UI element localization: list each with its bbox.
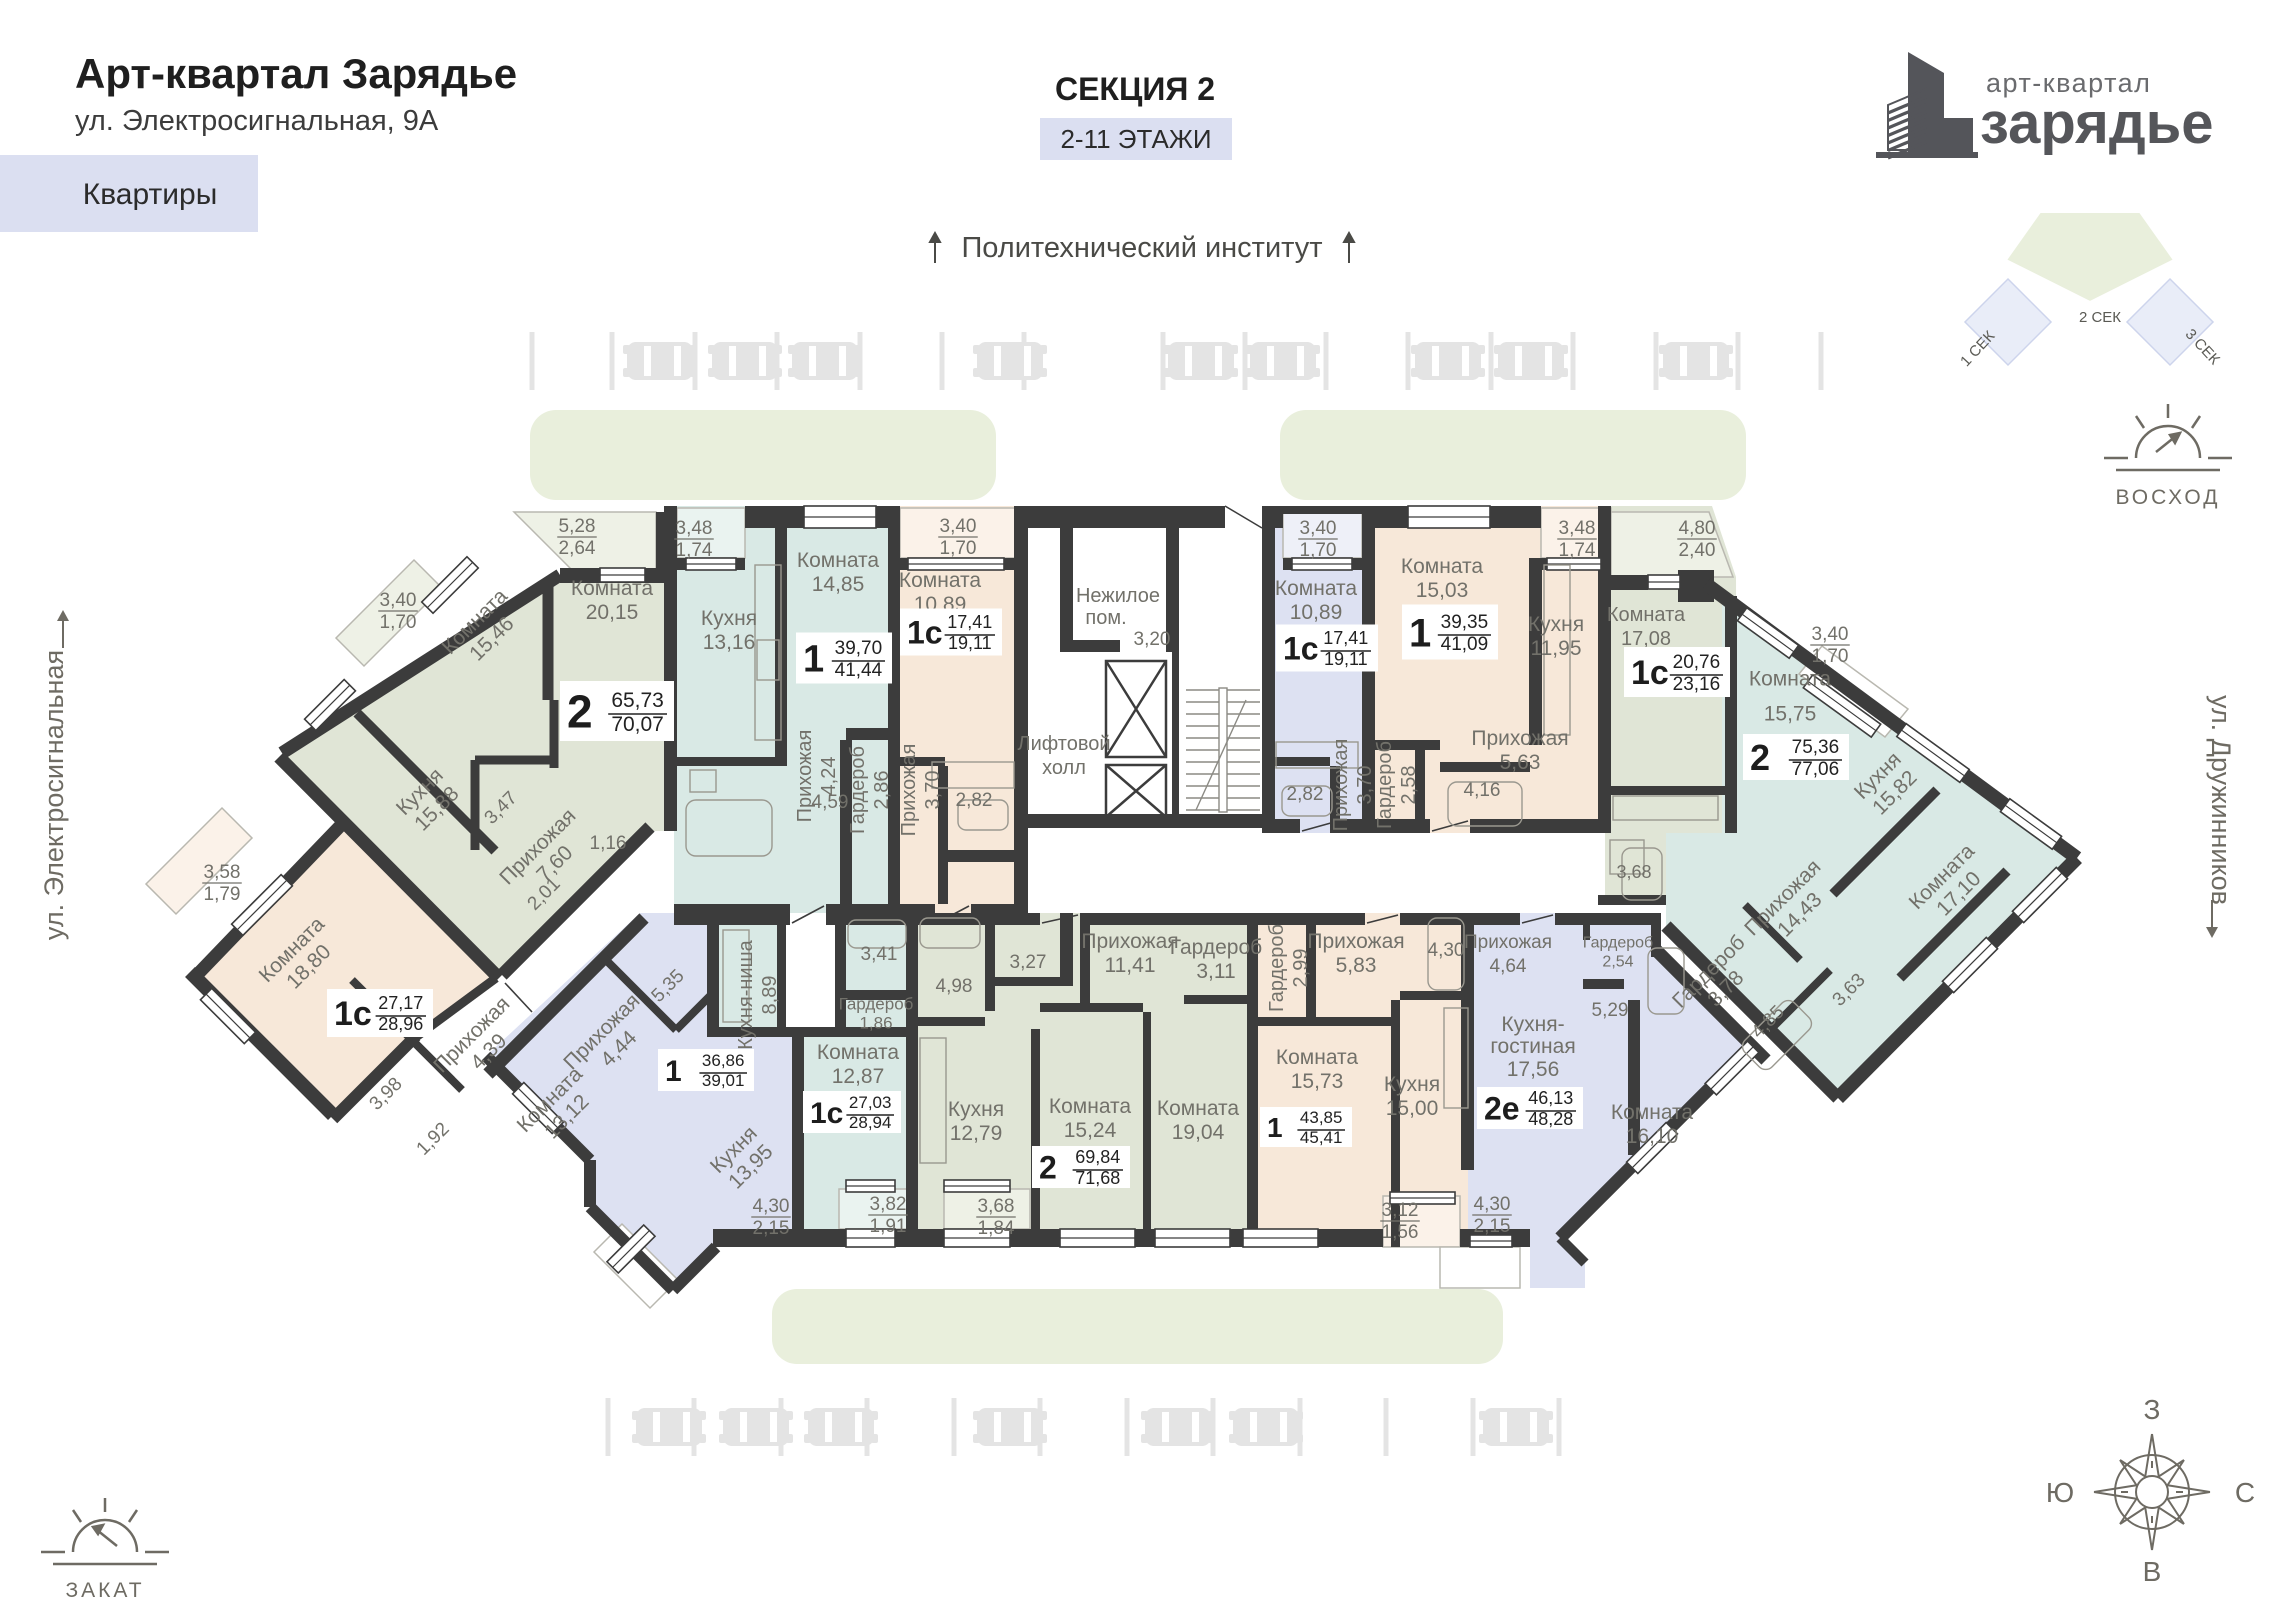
svg-text:Гардероб: Гардероб: [1170, 936, 1262, 959]
svg-text:2: 2: [1039, 1150, 1057, 1186]
svg-text:45,41: 45,41: [1300, 1128, 1343, 1147]
svg-text:Гардероб: Гардероб: [1583, 935, 1653, 952]
svg-text:1с: 1с: [810, 1097, 843, 1130]
svg-text:2-11 ЭТАЖИ: 2-11 ЭТАЖИ: [1060, 124, 1211, 154]
svg-text:46,13: 46,13: [1528, 1088, 1573, 1108]
svg-text:2,15: 2,15: [1474, 1216, 1511, 1237]
svg-text:48,28: 48,28: [1528, 1109, 1573, 1129]
svg-text:3,48: 3,48: [1559, 518, 1596, 539]
svg-text:1,70: 1,70: [940, 538, 977, 559]
svg-text:15,75: 15,75: [1764, 703, 1817, 726]
svg-text:27,17: 27,17: [378, 993, 423, 1013]
svg-text:С: С: [2235, 1477, 2255, 1508]
svg-text:5,28: 5,28: [559, 516, 596, 537]
svg-text:1с: 1с: [1283, 631, 1319, 667]
svg-text:4,24: 4,24: [818, 757, 840, 796]
svg-text:Кухня: Кухня: [1528, 613, 1584, 636]
svg-text:Арт-квартал Зарядье: Арт-квартал Зарядье: [75, 50, 517, 97]
svg-text:4,16: 4,16: [1464, 780, 1501, 801]
svg-text:Комната: Комната: [1157, 1097, 1240, 1120]
svg-text:3,40: 3,40: [1300, 518, 1337, 539]
svg-text:11,41: 11,41: [1105, 954, 1156, 977]
svg-text:3,58: 3,58: [204, 862, 241, 883]
svg-text:Комната: Комната: [1611, 1101, 1694, 1124]
svg-text:39,35: 39,35: [1441, 612, 1489, 633]
svg-text:Лифтовой: Лифтовой: [1017, 733, 1110, 755]
svg-text:2: 2: [1750, 737, 1770, 778]
svg-text:3,70: 3,70: [922, 771, 944, 810]
svg-text:15,00: 15,00: [1386, 1097, 1439, 1120]
svg-text:1: 1: [1267, 1112, 1283, 1143]
svg-text:1,70: 1,70: [380, 612, 417, 633]
svg-text:Нежилое: Нежилое: [1076, 585, 1160, 607]
svg-text:39,01: 39,01: [702, 1071, 745, 1090]
svg-text:19,11: 19,11: [1324, 649, 1368, 669]
svg-text:1,74: 1,74: [1559, 540, 1596, 561]
svg-text:23,16: 23,16: [1673, 674, 1721, 695]
svg-text:Кухня: Кухня: [701, 607, 757, 630]
svg-text:зарядье: зарядье: [1980, 91, 2214, 156]
svg-text:3,48: 3,48: [676, 518, 713, 539]
svg-text:12,79: 12,79: [950, 1122, 1003, 1145]
svg-text:1,79: 1,79: [204, 884, 241, 905]
svg-text:12,87: 12,87: [832, 1065, 885, 1088]
svg-text:3,40: 3,40: [1812, 624, 1849, 645]
svg-text:14,85: 14,85: [812, 573, 865, 596]
svg-text:2: 2: [567, 686, 593, 738]
svg-text:Прихожая: Прихожая: [1307, 930, 1404, 953]
svg-text:Комната: Комната: [817, 1041, 900, 1064]
svg-text:3,68: 3,68: [1616, 862, 1651, 882]
svg-text:77,06: 77,06: [1792, 759, 1840, 780]
svg-text:4,64: 4,64: [1490, 956, 1527, 977]
svg-text:19,04: 19,04: [1172, 1121, 1225, 1144]
svg-text:11,95: 11,95: [1531, 637, 1582, 660]
svg-text:1: 1: [1409, 611, 1431, 655]
svg-text:Комната: Комната: [1607, 604, 1686, 626]
svg-text:пом.: пом.: [1085, 607, 1126, 629]
svg-text:2,40: 2,40: [1679, 540, 1716, 561]
svg-text:2,86: 2,86: [871, 771, 893, 810]
svg-text:75,36: 75,36: [1792, 737, 1840, 758]
svg-text:2,58: 2,58: [1398, 766, 1420, 805]
svg-text:Политехнический институт: Политехнический институт: [961, 232, 1322, 264]
svg-text:3,11: 3,11: [1196, 960, 1235, 983]
svg-text:41,44: 41,44: [835, 660, 883, 681]
svg-text:Кухня-ниша: Кухня-ниша: [735, 939, 757, 1049]
svg-text:28,96: 28,96: [378, 1014, 423, 1034]
svg-text:1: 1: [803, 639, 824, 681]
svg-text:69,84: 69,84: [1075, 1147, 1120, 1167]
svg-text:15,73: 15,73: [1291, 1070, 1344, 1093]
svg-text:17,41: 17,41: [947, 612, 992, 632]
svg-text:Комната: Комната: [797, 549, 880, 572]
svg-text:17,08: 17,08: [1621, 628, 1671, 650]
svg-text:27,03: 27,03: [849, 1093, 892, 1112]
svg-text:41,09: 41,09: [1441, 634, 1489, 655]
svg-text:4,98: 4,98: [936, 976, 973, 997]
svg-text:ЗАКАТ: ЗАКАТ: [65, 1579, 144, 1602]
svg-text:2е: 2е: [1484, 1091, 1520, 1127]
svg-text:8,89: 8,89: [759, 976, 781, 1015]
svg-text:СЕКЦИЯ 2: СЕКЦИЯ 2: [1055, 71, 1215, 107]
svg-text:Прихожая: Прихожая: [898, 744, 920, 837]
svg-text:16,10: 16,10: [1626, 1125, 1679, 1148]
svg-text:ул. Электросигнальная: ул. Электросигнальная: [39, 650, 69, 940]
svg-text:3,27: 3,27: [1010, 952, 1047, 973]
svg-text:28,94: 28,94: [849, 1113, 892, 1132]
svg-text:2,82: 2,82: [956, 790, 993, 811]
svg-text:3,82: 3,82: [870, 1194, 907, 1215]
svg-text:2,99: 2,99: [1290, 949, 1312, 988]
svg-text:65,73: 65,73: [611, 689, 664, 712]
svg-text:Комната: Комната: [1401, 555, 1484, 578]
svg-text:2,64: 2,64: [559, 538, 596, 559]
svg-text:Гардероб: Гардероб: [1266, 924, 1288, 1012]
svg-text:ул. Электросигнальная, 9А: ул. Электросигнальная, 9А: [75, 105, 439, 137]
svg-text:Гардероб: Гардероб: [839, 995, 914, 1014]
svg-text:З: З: [2144, 1394, 2161, 1425]
svg-text:36,86: 36,86: [702, 1051, 745, 1070]
svg-text:Комната: Комната: [1049, 1095, 1132, 1118]
svg-text:2,82: 2,82: [1287, 784, 1324, 805]
svg-text:Ю: Ю: [2046, 1477, 2074, 1508]
svg-text:4,30: 4,30: [1428, 940, 1465, 961]
svg-text:Прихожая: Прихожая: [794, 730, 816, 823]
svg-text:1,91: 1,91: [870, 1216, 907, 1237]
svg-text:1,56: 1,56: [1382, 1222, 1419, 1243]
svg-text:Гардероб: Гардероб: [1374, 741, 1396, 829]
svg-text:17,56: 17,56: [1507, 1058, 1560, 1081]
svg-text:17,41: 17,41: [1323, 628, 1368, 648]
svg-text:1,70: 1,70: [1812, 646, 1849, 667]
svg-text:3,41: 3,41: [861, 944, 898, 965]
svg-text:19,11: 19,11: [948, 633, 992, 653]
svg-text:20,76: 20,76: [1673, 652, 1721, 673]
svg-text:4,80: 4,80: [1679, 518, 1716, 539]
svg-text:15,24: 15,24: [1064, 1119, 1117, 1142]
svg-text:ВОСХОД: ВОСХОД: [2115, 486, 2220, 509]
svg-text:10,89: 10,89: [1290, 601, 1343, 624]
svg-text:4,30: 4,30: [1474, 1194, 1511, 1215]
svg-text:4,30: 4,30: [753, 1196, 790, 1217]
svg-text:70,07: 70,07: [611, 713, 664, 736]
svg-text:3,68: 3,68: [978, 1196, 1015, 1217]
svg-text:13,16: 13,16: [703, 631, 756, 654]
svg-text:5,83: 5,83: [1336, 954, 1377, 977]
svg-text:Прихожая: Прихожая: [1471, 727, 1568, 750]
svg-text:3,20: 3,20: [1134, 629, 1171, 650]
svg-text:1,86: 1,86: [859, 1014, 892, 1033]
svg-text:2,15: 2,15: [753, 1218, 790, 1239]
svg-text:20,15: 20,15: [586, 601, 639, 624]
svg-text:2,54: 2,54: [1602, 954, 1633, 971]
svg-text:Кухня: Кухня: [948, 1098, 1004, 1121]
svg-text:39,70: 39,70: [835, 638, 883, 659]
svg-text:Гардероб: Гардероб: [847, 746, 869, 834]
svg-text:5,29: 5,29: [1592, 1000, 1629, 1021]
svg-text:1: 1: [665, 1055, 682, 1088]
svg-text:1,74: 1,74: [676, 540, 713, 561]
svg-text:3,70: 3,70: [1354, 766, 1376, 805]
svg-text:71,68: 71,68: [1075, 1168, 1120, 1188]
svg-text:1с: 1с: [907, 615, 943, 651]
svg-text:3,40: 3,40: [380, 590, 417, 611]
svg-text:Прихожая: Прихожая: [1081, 930, 1178, 953]
svg-text:Кухня-: Кухня-: [1501, 1013, 1564, 1036]
svg-text:гостиная: гостиная: [1490, 1035, 1575, 1058]
svg-text:1,16: 1,16: [590, 833, 627, 854]
svg-text:1с: 1с: [334, 995, 372, 1033]
svg-text:Комната: Комната: [1276, 1046, 1359, 1069]
svg-text:Комната: Комната: [1749, 668, 1832, 691]
svg-text:Комната: Комната: [571, 577, 654, 600]
svg-text:Комната: Комната: [899, 569, 982, 592]
svg-text:Комната: Комната: [1275, 577, 1358, 600]
svg-text:1с: 1с: [1631, 654, 1669, 692]
svg-text:5,63: 5,63: [1500, 751, 1541, 774]
svg-text:1,70: 1,70: [1300, 540, 1337, 561]
svg-text:2 СЕК: 2 СЕК: [2079, 309, 2121, 326]
svg-text:15,03: 15,03: [1416, 579, 1469, 602]
svg-text:43,85: 43,85: [1300, 1108, 1343, 1127]
svg-text:3,12: 3,12: [1382, 1200, 1419, 1221]
svg-text:Квартиры: Квартиры: [83, 178, 218, 211]
svg-text:Прихожая: Прихожая: [1330, 739, 1352, 832]
svg-text:В: В: [2143, 1556, 2162, 1587]
svg-text:Прихожая: Прихожая: [1464, 932, 1552, 953]
svg-text:3,40: 3,40: [940, 516, 977, 537]
svg-text:ул. Дружинников: ул. Дружинников: [2206, 695, 2236, 905]
svg-text:Кухня: Кухня: [1384, 1073, 1440, 1096]
svg-text:1,84: 1,84: [978, 1218, 1015, 1239]
svg-text:холл: холл: [1042, 757, 1086, 779]
